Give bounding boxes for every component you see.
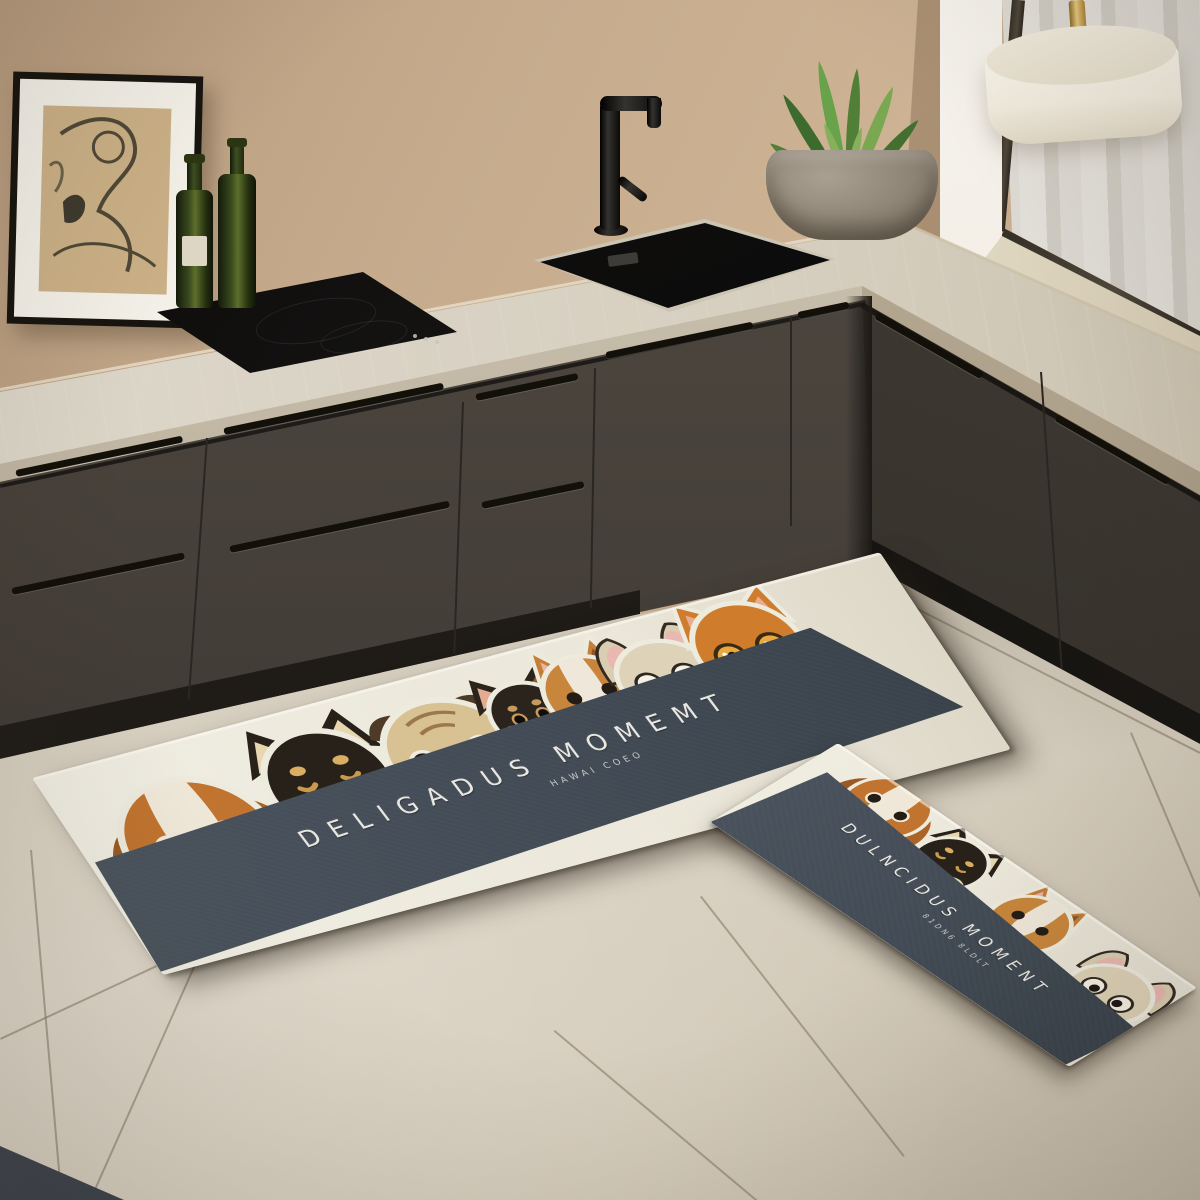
bottle-lip xyxy=(227,138,247,147)
plant-pot xyxy=(766,150,938,240)
faucet-spout xyxy=(647,98,661,128)
bottle-tall xyxy=(218,174,256,308)
cabinet-seam xyxy=(790,316,792,526)
faucet-lever xyxy=(616,175,648,203)
cooktop-control-dot xyxy=(435,340,439,344)
bottle-label xyxy=(182,236,207,266)
art-sketch xyxy=(39,105,172,294)
art-paper xyxy=(39,105,172,294)
cooktop-control-dot xyxy=(413,334,417,338)
bottle-neck xyxy=(230,144,244,178)
bottle-lip xyxy=(184,154,205,163)
cooktop-control-dot xyxy=(424,337,428,341)
cabinet-corner-shadow xyxy=(846,296,872,568)
art-mat xyxy=(14,79,196,322)
faucet-body xyxy=(600,102,620,230)
kitchen-photo: DELIGADUS MOMEMT HAWAI COEO DULNCIDUS MO… xyxy=(0,0,1200,1200)
oil-bottles xyxy=(170,150,265,315)
